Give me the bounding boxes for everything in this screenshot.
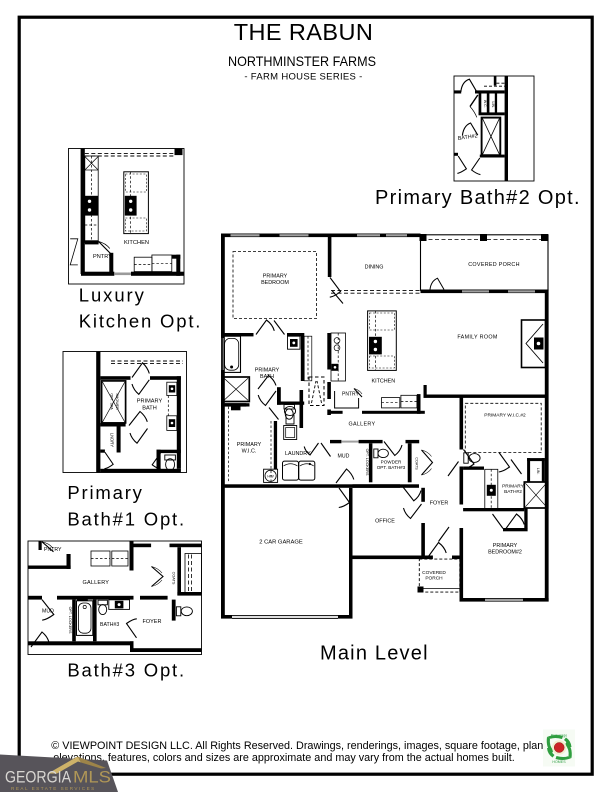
- svg-text:MLS: MLS: [73, 769, 111, 787]
- svg-text:COVERED PORCH: COVERED PORCH: [468, 262, 520, 268]
- svg-text:PRIMARY: PRIMARY: [237, 442, 262, 448]
- svg-text:BEDROOM: BEDROOM: [261, 280, 289, 286]
- svg-text:LIN.: LIN.: [536, 468, 540, 475]
- svg-text:BATH#2: BATH#2: [504, 489, 522, 495]
- svg-text:W.I.C.: W.I.C.: [242, 449, 257, 455]
- svg-text:DINING: DINING: [365, 265, 384, 271]
- svg-text:Kitchen Opt.: Kitchen Opt.: [79, 311, 202, 332]
- svg-text:GALLERY: GALLERY: [349, 422, 376, 428]
- svg-text:BATH#2: BATH#2: [457, 133, 478, 142]
- svg-text:COATS: COATS: [171, 572, 175, 585]
- svg-text:OPT. LOCKERS: OPT. LOCKERS: [365, 449, 369, 476]
- svg-text:FAMILY ROOM: FAMILY ROOM: [457, 335, 497, 341]
- svg-text:PRIMARY: PRIMARY: [263, 274, 288, 280]
- svg-text:PRIMARY: PRIMARY: [493, 543, 518, 549]
- svg-text:BATH#3: BATH#3: [100, 622, 119, 628]
- svg-text:HOMES: HOMES: [552, 760, 566, 764]
- svg-text:- FARM HOUSE SERIES -: - FARM HOUSE SERIES -: [244, 72, 362, 83]
- svg-text:PORCH: PORCH: [425, 576, 443, 582]
- svg-text:LNDRY: LNDRY: [110, 433, 115, 447]
- svg-text:BATH: BATH: [142, 405, 157, 411]
- svg-text:Main Level: Main Level: [320, 643, 429, 665]
- svg-text:PNTRY: PNTRY: [93, 254, 112, 260]
- svg-text:COATS: COATS: [415, 457, 419, 470]
- svg-text:POWDER: POWDER: [381, 460, 402, 465]
- svg-text:MUD: MUD: [338, 454, 350, 460]
- svg-text:GEORGIA: GEORGIA: [5, 769, 71, 787]
- svg-text:KITCHEN: KITCHEN: [372, 379, 396, 385]
- svg-text:HW: HW: [267, 475, 274, 479]
- svg-text:COVERED: COVERED: [422, 570, 446, 576]
- svg-text:PRIMARY: PRIMARY: [255, 368, 280, 374]
- svg-text:OFFICE: OFFICE: [375, 519, 395, 525]
- svg-text:FOYER: FOYER: [143, 619, 162, 625]
- svg-text:Primary: Primary: [67, 482, 143, 503]
- svg-text:MUD: MUD: [42, 609, 54, 615]
- svg-text:2 CAR GARAGE: 2 CAR GARAGE: [259, 540, 303, 546]
- svg-text:LIN.: LIN.: [491, 102, 495, 109]
- svg-text:OPT. LOCKERS: OPT. LOCKERS: [68, 607, 72, 634]
- svg-text:KITCHEN: KITCHEN: [124, 240, 149, 246]
- svg-text:PNTRY: PNTRY: [342, 392, 360, 398]
- svg-text:FOYER: FOYER: [430, 501, 449, 507]
- svg-text:© VIEWPOINT DESIGN LLC. All Ri: © VIEWPOINT DESIGN LLC. All Rights Reser…: [51, 740, 551, 752]
- svg-text:PRIMARY W.I.C.#2: PRIMARY W.I.C.#2: [484, 413, 526, 419]
- svg-text:OPT. SPA: OPT. SPA: [110, 393, 114, 410]
- svg-text:Luxury: Luxury: [79, 285, 146, 306]
- svg-text:THE RABUN: THE RABUN: [234, 19, 373, 45]
- svg-text:NORTHMINSTER FARMS: NORTHMINSTER FARMS: [228, 53, 376, 69]
- svg-text:PRIMARY: PRIMARY: [137, 399, 163, 405]
- svg-text:REAL ESTATE SERVICES: REAL ESTATE SERVICES: [11, 786, 96, 791]
- svg-text:W.C.: W.C.: [483, 100, 487, 108]
- svg-text:BEDROOM#2: BEDROOM#2: [488, 550, 522, 556]
- svg-text:Primary Bath#2 Opt.: Primary Bath#2 Opt.: [375, 187, 581, 209]
- svg-text:elevations, features, colors a: elevations, features, colors and sizes a…: [53, 752, 515, 764]
- svg-text:Bath#3 Opt.: Bath#3 Opt.: [67, 660, 186, 681]
- svg-text:PRIMARY: PRIMARY: [502, 484, 525, 490]
- svg-text:Bath#1 Opt.: Bath#1 Opt.: [67, 509, 186, 530]
- svg-text:SHOWER: SHOWER: [115, 393, 119, 410]
- svg-text:OPT. BATH#3: OPT. BATH#3: [377, 465, 406, 470]
- svg-text:GALLERY: GALLERY: [83, 580, 110, 586]
